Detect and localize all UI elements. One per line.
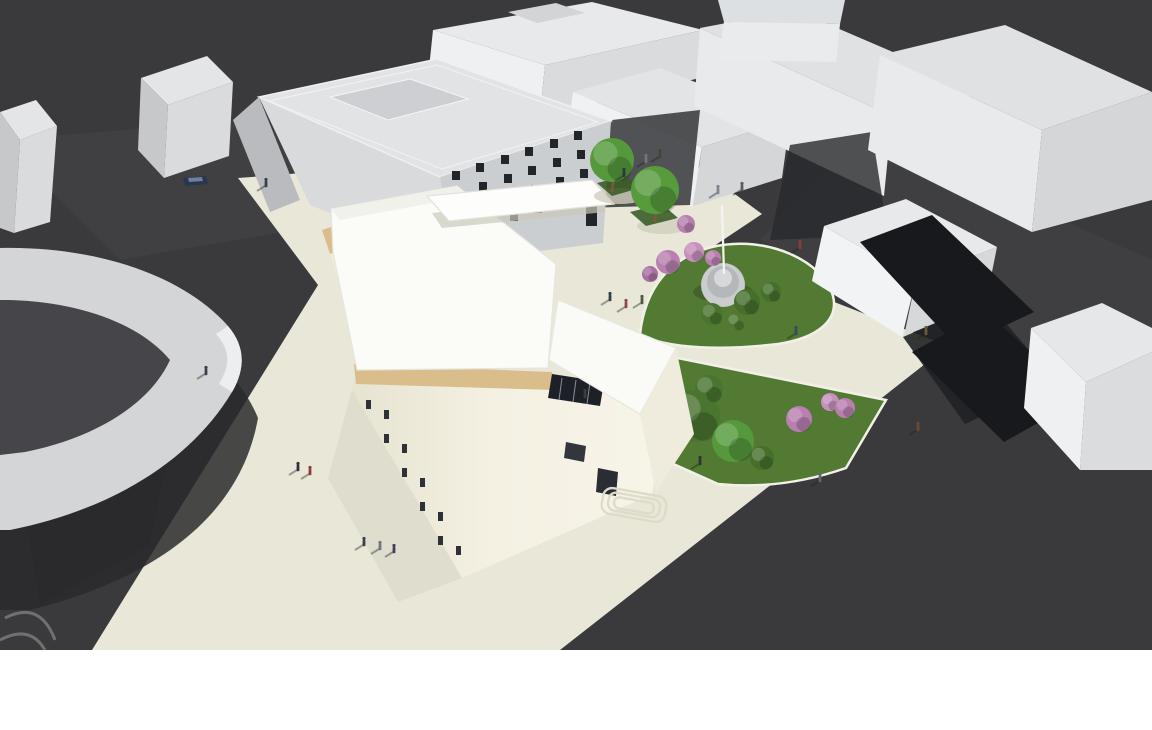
massing-building [718,0,845,62]
footer-banner: Europska unija Zajedno do fondova EU [0,650,1152,730]
massing-building [0,100,57,233]
architectural-render-page: Europska unija Zajedno do fondova EU [0,0,1152,730]
architectural-render [0,0,1152,650]
